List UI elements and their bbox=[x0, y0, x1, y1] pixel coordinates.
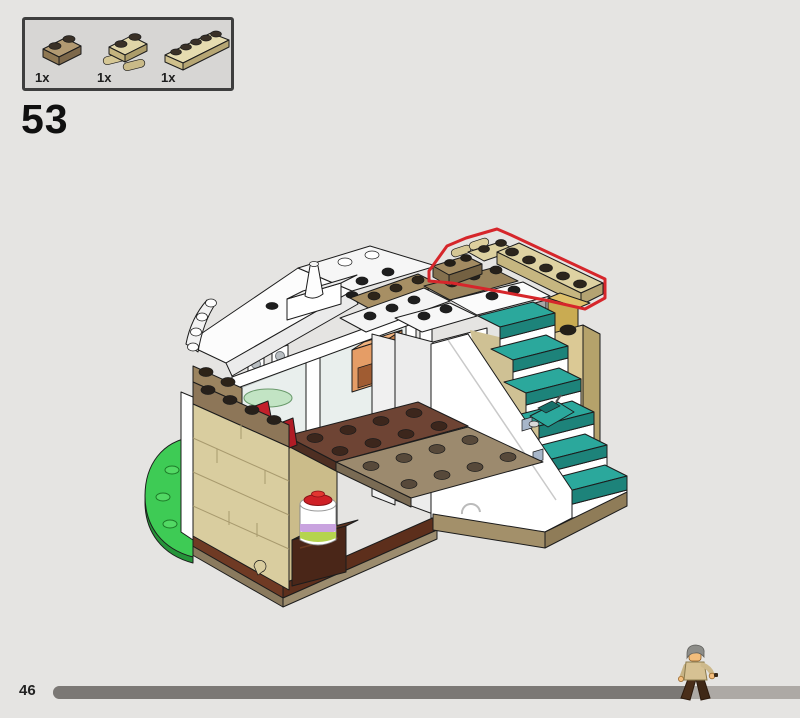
staircase bbox=[431, 302, 627, 532]
page-number: 46 bbox=[19, 682, 36, 699]
progress-bar-fill bbox=[53, 686, 690, 699]
walking-minifigure-icon bbox=[674, 644, 718, 704]
model-illustration bbox=[0, 0, 800, 718]
instruction-page: 1x 1x bbox=[0, 0, 800, 718]
